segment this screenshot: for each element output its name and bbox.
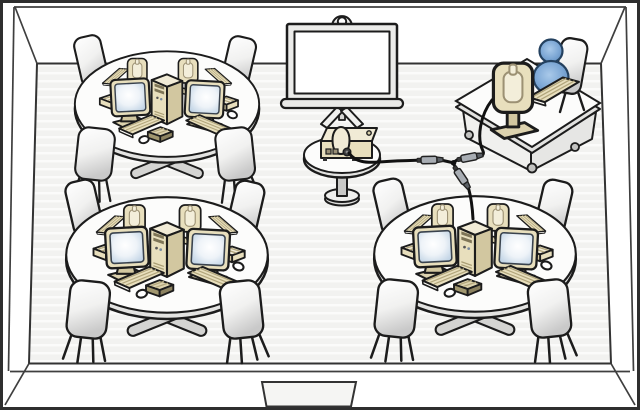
door xyxy=(262,382,356,407)
screen-surface xyxy=(295,32,390,94)
teacher-monitor xyxy=(491,63,537,138)
projector xyxy=(321,127,377,161)
classroom-lab-diagram xyxy=(0,0,640,410)
connector-plug-1 xyxy=(417,156,443,164)
caster-wheel xyxy=(571,143,579,151)
projector-vent-left xyxy=(326,149,331,154)
caster-wheel xyxy=(528,164,537,173)
projector-foot-left xyxy=(323,158,327,161)
projector-knob xyxy=(367,131,371,135)
cable-junction xyxy=(451,160,457,166)
projector-vent-right xyxy=(333,149,338,154)
cable-link-1 xyxy=(443,161,452,163)
caster-wheel xyxy=(465,131,473,139)
classroom-diagram-canvas xyxy=(0,0,640,410)
screen-bottom-bar xyxy=(281,99,403,108)
person-head xyxy=(540,40,563,63)
